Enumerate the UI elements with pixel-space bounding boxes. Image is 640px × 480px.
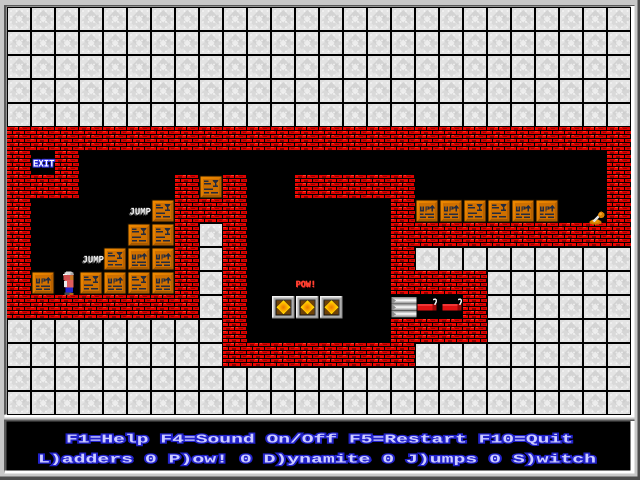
svg-text:POW!: POW! <box>296 279 316 290</box>
svg-text:F1=Help F4=Sound On/Off F5=R: F1=Help F4=Sound On/Off F5=Restart F10=Q… <box>66 433 573 447</box>
svg-text:L)adders 0 P)ow! 0 D)ynamite: L)adders 0 P)ow! 0 D)ynamite 0 J)umps 0 … <box>38 453 596 467</box>
svg-text:JUMP: JUMP <box>130 208 152 219</box>
svg-text:JUMP: JUMP <box>83 256 105 267</box>
svg-text:EXIT: EXIT <box>33 160 55 171</box>
